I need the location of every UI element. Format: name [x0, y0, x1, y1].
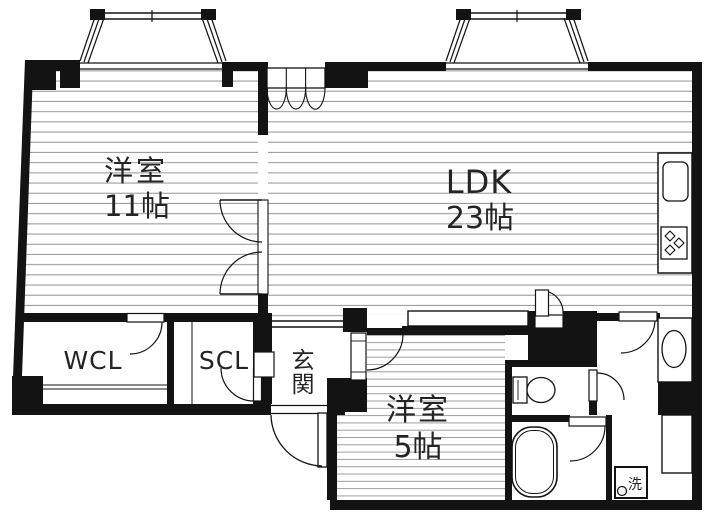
bathtub-icon [512, 427, 557, 497]
label-genkan-1: 玄 [292, 348, 315, 374]
floor-areas [24, 70, 692, 500]
bathroom-door [569, 417, 606, 461]
wall-bottom-left [12, 404, 271, 415]
label-laundry: 洗 [628, 477, 642, 493]
kitchen-counter [658, 153, 692, 273]
label-ldk-name: LDK [446, 163, 512, 201]
floor-plan-canvas: 洋室 11帖 LDK 23帖 WCL SCL 玄 関 洋室 5帖 洗 [0, 0, 710, 517]
label-scl: SCL [199, 346, 249, 375]
wcl-door [127, 314, 164, 355]
closet-sliding [408, 311, 528, 326]
gas-stove-icon [661, 227, 687, 259]
floor-ldk-hall [268, 315, 343, 321]
label-wcl: WCL [63, 346, 122, 375]
label-western5-size: 5帖 [393, 430, 442, 465]
kitchen-sink-icon [663, 162, 688, 201]
label-ldk-size: 23帖 [446, 201, 514, 236]
bay-window-right [444, 9, 590, 69]
wall-bottom-right [330, 500, 702, 510]
toilet-icon [513, 377, 555, 403]
floor-plan: 洋室 11帖 LDK 23帖 WCL SCL 玄 関 洋室 5帖 洗 [0, 0, 710, 517]
label-western11-size: 11帖 [104, 189, 170, 223]
entrance-door [271, 413, 327, 467]
cabinet [662, 415, 692, 473]
washroom-door [619, 312, 657, 353]
wash-basin-icon [658, 318, 692, 382]
bay-window-left [78, 9, 228, 69]
label-western11-name: 洋室 [104, 154, 168, 188]
label-genkan-2: 関 [292, 372, 315, 398]
wall-right [692, 62, 702, 510]
label-western5-name: 洋室 [386, 393, 450, 428]
toilet-door [589, 370, 624, 401]
